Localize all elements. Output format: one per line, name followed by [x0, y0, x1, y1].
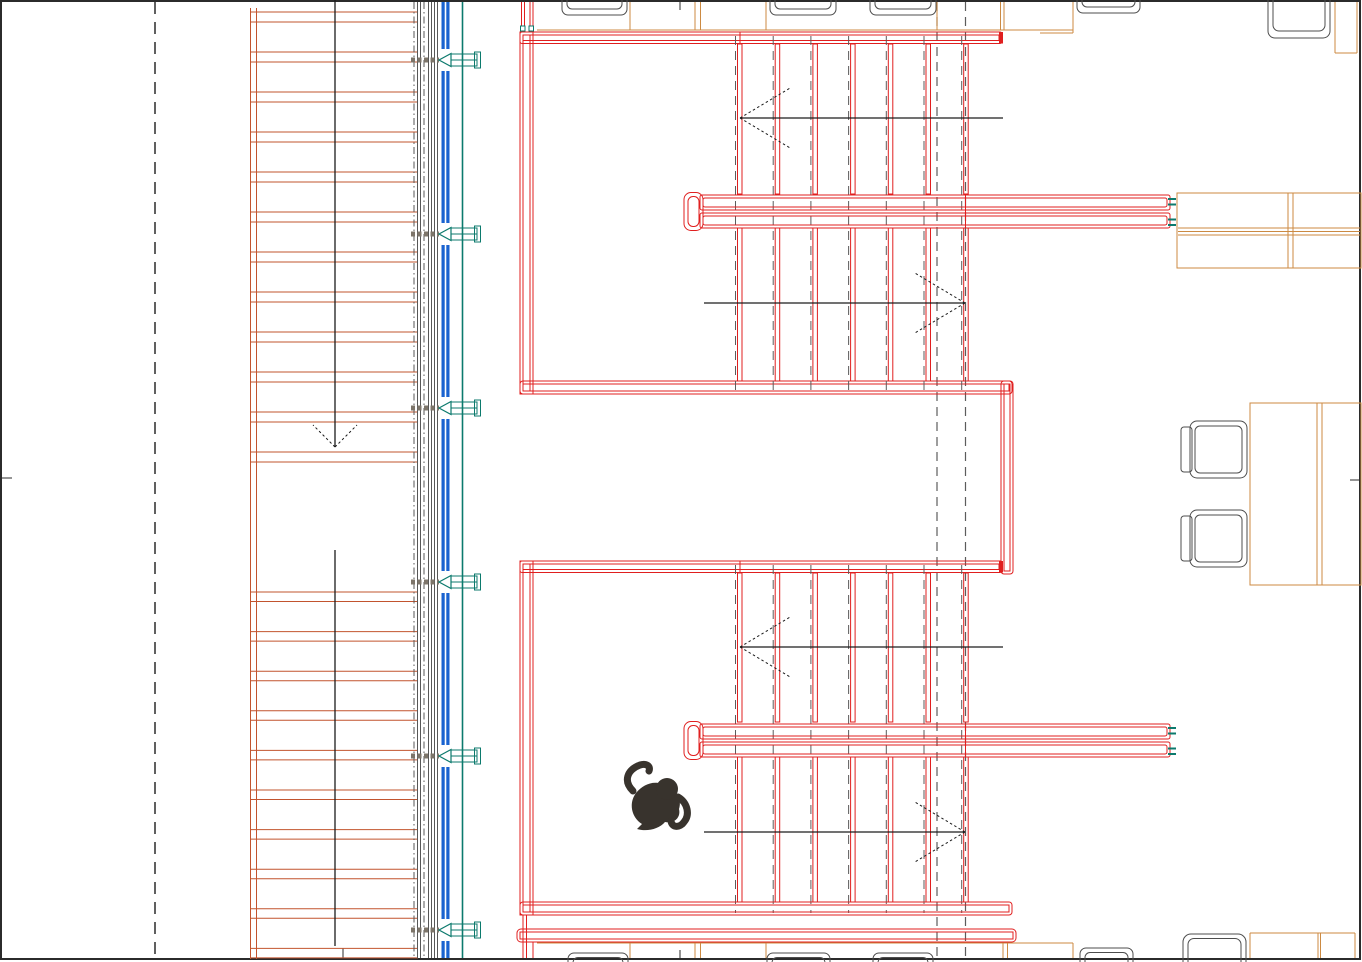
wall-joint-mark: [521, 26, 526, 31]
stair-left-wall: [520, 32, 533, 394]
handrail-bar: [700, 213, 1170, 228]
arrow-head-left: [740, 647, 791, 678]
stair-riser: [775, 44, 780, 194]
stair-top-wall: [520, 32, 1002, 44]
page-border: [1, 1, 1360, 959]
stair-riser: [851, 44, 856, 194]
down-arrow-head: [313, 425, 335, 447]
landing-edge-bar-inner: [520, 932, 1013, 939]
handrail-bar: [700, 724, 1170, 739]
curtain-wall: [411, 2, 481, 958]
stair-riser: [851, 757, 856, 902]
wall-joint-mark: [529, 26, 534, 31]
chair-outline: [562, 0, 627, 15]
stair-left-wall: [520, 561, 533, 915]
arrow-head-right: [914, 802, 965, 833]
furniture-right: [1177, 193, 1361, 585]
desk-unit: [1177, 193, 1361, 268]
stair-bottom-wall-inner: [523, 905, 1009, 912]
stair-riser: [813, 44, 818, 194]
stair-bottom-wall: [520, 381, 1012, 394]
escalator: [250, 0, 418, 959]
stair-riser: [851, 228, 856, 381]
chair-outline: [1268, 0, 1330, 38]
stair-bottom-wall: [520, 902, 1012, 915]
arrow-head-left: [740, 88, 791, 119]
stair-riser: [738, 757, 743, 902]
chair-outline: [1190, 510, 1247, 567]
desk-unit: [1250, 403, 1361, 585]
arrow-head-right: [914, 273, 965, 304]
stair-top-wall-inner: [523, 35, 999, 41]
chair-outline: [1190, 421, 1247, 478]
stair-riser: [926, 44, 931, 194]
furniture-top: [537, 0, 1357, 53]
page-frame: [0, 1, 1361, 959]
arrow-head-right: [914, 303, 965, 334]
landing-edge-bar: [517, 929, 1016, 942]
arrow-head-left: [740, 118, 791, 149]
down-arrow-head: [335, 425, 357, 447]
handrail-bar: [700, 195, 1170, 210]
handrail-end-cap-inner: [688, 197, 699, 227]
chair-inner: [1195, 515, 1242, 562]
stair-units: [517, 2, 1176, 958]
chair-outline: [870, 0, 936, 15]
stair-left-wall-inner: [523, 564, 530, 912]
stair-riser: [926, 228, 931, 381]
wall-end-cap: [999, 32, 1003, 44]
stair-riser: [775, 228, 780, 381]
furniture-bottom: [537, 933, 1355, 962]
stair-riser: [775, 757, 780, 902]
handrail-end-cap-inner: [688, 726, 699, 756]
arrow-head-left: [740, 617, 791, 648]
handrail-bar-inner: [703, 198, 1167, 207]
stair-riser: [888, 757, 893, 902]
chair-inner: [1195, 426, 1242, 473]
person-figure: [627, 764, 687, 830]
handrail-bar-inner: [703, 745, 1167, 754]
stair-side-wall-inner: [1004, 384, 1010, 571]
stair-riser: [926, 757, 931, 902]
stair-riser: [813, 757, 818, 902]
chair-inner: [1085, 953, 1128, 962]
stair-riser: [888, 228, 893, 381]
chair-inner: [1273, 0, 1325, 31]
cad-canvas: [0, 0, 1362, 962]
stair-left-wall-inner: [523, 35, 530, 391]
handrail-bar-inner: [703, 727, 1167, 736]
stair-top-wall-inner: [523, 564, 999, 570]
handrail-bar-inner: [703, 216, 1167, 225]
chair-outline: [770, 0, 836, 15]
handrail-bar: [700, 742, 1170, 757]
arrow-head-right: [914, 832, 965, 863]
grid-lines: [155, 2, 966, 958]
stair-bottom-wall-inner: [523, 384, 1009, 391]
floor-plan-svg: [0, 0, 1362, 962]
stair-riser: [738, 228, 743, 381]
stair-side-wall: [1001, 381, 1013, 574]
stair-riser: [888, 44, 893, 194]
stair-riser: [813, 228, 818, 381]
stair-top-wall: [520, 561, 1002, 573]
